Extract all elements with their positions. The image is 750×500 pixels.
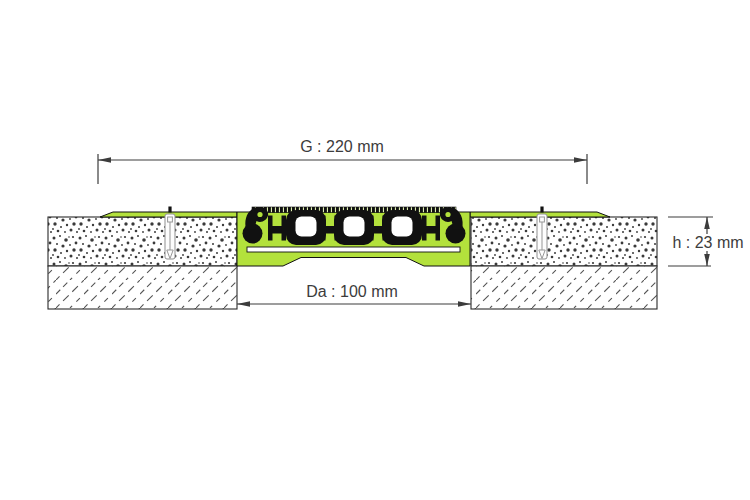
dimension-h-label: h : 23 mm: [672, 234, 743, 251]
profile-slot: [247, 247, 460, 252]
rubber-bellows-1: [286, 210, 326, 245]
right-concrete-block: [471, 217, 657, 309]
anchor-left: [165, 207, 175, 260]
expansion-joint-section-drawing: G : 220 mm: [0, 0, 750, 500]
right-concrete-slab: [471, 266, 657, 309]
right-concrete-topping: [471, 217, 657, 266]
dimension-da: Da : 100 mm: [237, 283, 471, 307]
dimension-g: G : 220 mm: [98, 138, 587, 184]
left-concrete-topping: [48, 217, 237, 266]
rubber-bellows-3: [382, 210, 422, 245]
rubber-bellows-2: [334, 210, 374, 245]
dimension-da-label: Da : 100 mm: [306, 283, 398, 300]
drawing-canvas: G : 220 mm: [0, 0, 750, 500]
anchor-right: [537, 207, 547, 260]
left-concrete-block: [48, 217, 237, 309]
left-concrete-slab: [48, 266, 237, 309]
dimension-g-label: G : 220 mm: [300, 138, 384, 155]
dimension-h: h : 23 mm: [668, 217, 747, 266]
